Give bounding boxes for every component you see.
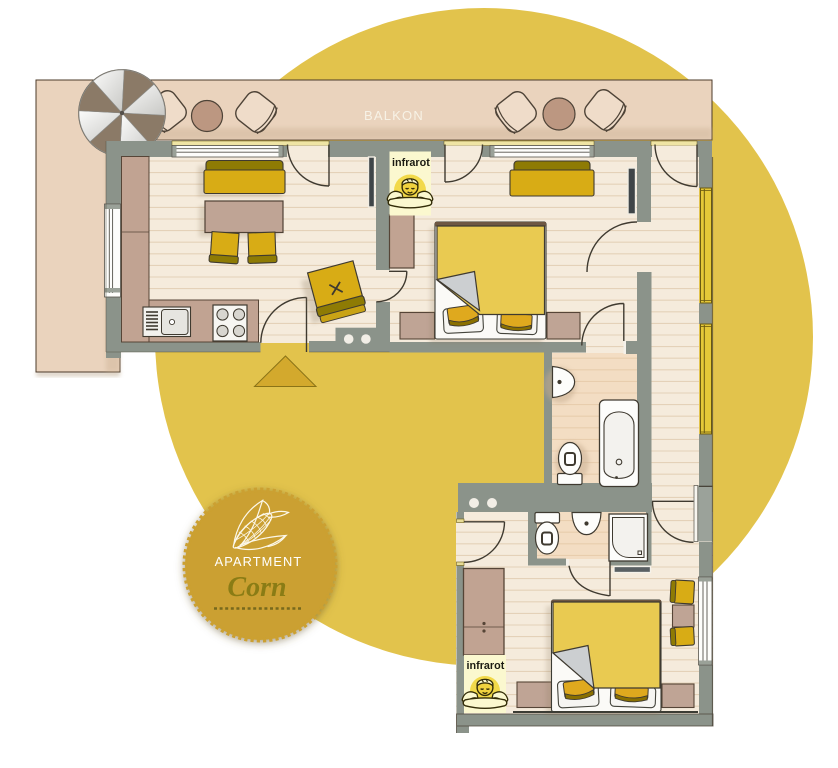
svg-text:BALKON: BALKON (364, 108, 424, 123)
svg-text:APARTMENT: APARTMENT (215, 554, 303, 569)
svg-text:infrarot: infrarot (467, 660, 505, 672)
svg-text:infrarot: infrarot (392, 157, 430, 169)
svg-text:Corn: Corn (227, 572, 286, 603)
